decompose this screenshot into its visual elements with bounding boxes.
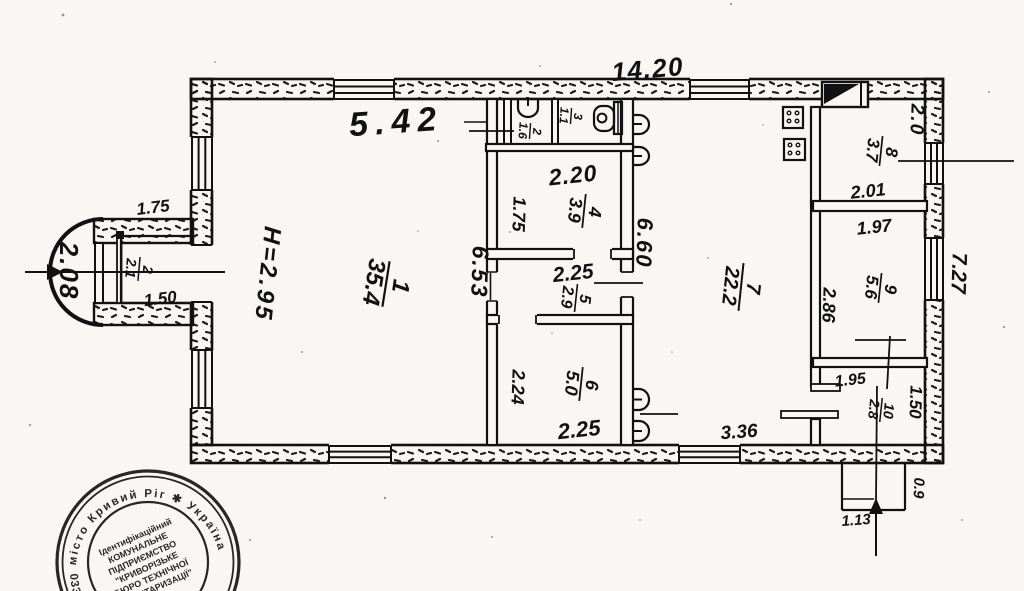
svg-text:3.9: 3.9 — [564, 197, 587, 224]
svg-text:1.1: 1.1 — [556, 107, 571, 125]
svg-text:7.27: 7.27 — [946, 252, 970, 295]
svg-text:1.97: 1.97 — [856, 215, 894, 239]
svg-text:2.9: 2.9 — [557, 284, 576, 309]
svg-text:2.24: 2.24 — [507, 368, 528, 405]
svg-text:2.25: 2.25 — [551, 260, 595, 287]
svg-text:2.1: 2.1 — [122, 257, 140, 279]
svg-text:2.20: 2.20 — [546, 160, 598, 191]
svg-text:2.08: 2.08 — [54, 241, 84, 301]
svg-text:1.50: 1.50 — [143, 287, 179, 310]
svg-text:3: 3 — [571, 113, 585, 121]
svg-text:2.25: 2.25 — [555, 415, 602, 445]
svg-text:1.75: 1.75 — [135, 196, 171, 219]
svg-text:2.86: 2.86 — [818, 286, 839, 324]
svg-text:2.8: 2.8 — [865, 398, 883, 420]
svg-text:5.6: 5.6 — [861, 274, 882, 300]
svg-text:14.20: 14.20 — [610, 51, 685, 87]
svg-text:5.0: 5.0 — [561, 370, 584, 397]
svg-text:6.60: 6.60 — [631, 217, 658, 269]
svg-text:2: 2 — [530, 127, 545, 136]
svg-text:5.42: 5.42 — [348, 100, 445, 144]
svg-text:22.2: 22.2 — [717, 264, 743, 306]
svg-text:1.75: 1.75 — [508, 196, 529, 233]
svg-text:2.0: 2.0 — [905, 102, 927, 136]
svg-text:3.36: 3.36 — [720, 421, 759, 445]
svg-text:1.6: 1.6 — [515, 122, 530, 140]
svg-text:1.50: 1.50 — [905, 385, 925, 419]
svg-text:4: 4 — [584, 205, 605, 218]
svg-text:1.95: 1.95 — [834, 370, 868, 390]
svg-text:2: 2 — [140, 264, 157, 274]
svg-text:0.9: 0.9 — [910, 477, 928, 499]
svg-text:6.53: 6.53 — [466, 245, 494, 299]
svg-text:3.7: 3.7 — [862, 137, 884, 164]
svg-text:1.13: 1.13 — [841, 511, 872, 530]
svg-text:2.01: 2.01 — [849, 179, 887, 203]
